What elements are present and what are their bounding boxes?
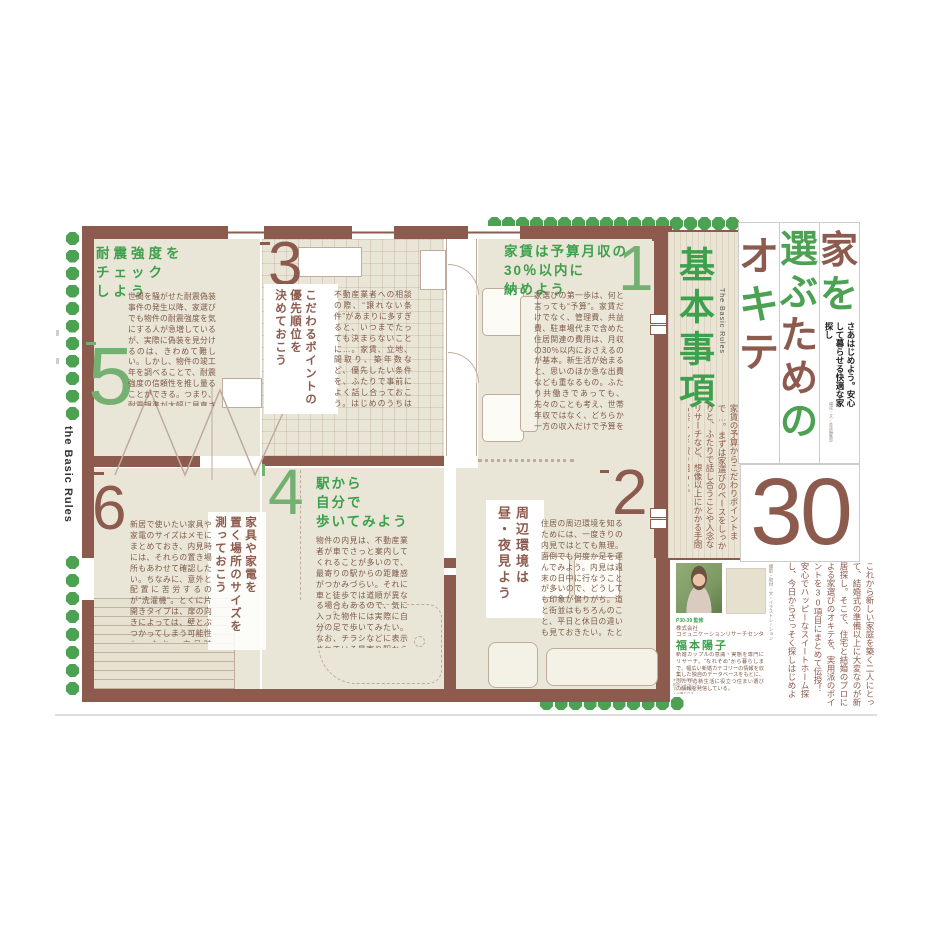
title-char: 選 bbox=[779, 229, 819, 272]
title-note: 構成・文／本誌編集部 bbox=[829, 402, 834, 458]
rule-2-headline: 周辺環境は 昼・夜見よう bbox=[494, 506, 530, 614]
dot-icon bbox=[66, 664, 79, 677]
door-jamb-block bbox=[444, 558, 456, 568]
left-rail-label: the Basic Rules bbox=[62, 426, 74, 541]
corridor-line bbox=[476, 239, 477, 456]
title-count: 30 bbox=[750, 459, 850, 565]
dot-icon bbox=[66, 407, 79, 420]
dot-icon bbox=[66, 610, 79, 623]
wall-divider-42 bbox=[444, 575, 456, 689]
rule-2-number: 2 bbox=[612, 460, 648, 524]
wall-left-lower bbox=[82, 600, 94, 702]
profile-photo bbox=[676, 563, 722, 613]
dot-icon bbox=[66, 646, 79, 659]
dot-icon bbox=[66, 232, 79, 245]
rule-3-body: 不動産業者への相談の際、“譲れない条件”があまりに多すぎると、いつまでたっても決… bbox=[334, 290, 412, 408]
dot-icon bbox=[66, 592, 79, 605]
title-char: キ bbox=[739, 281, 779, 329]
lead-text: これから新しい家庭を築く二人にとって、結婚式の準備以上に大変なのが新居探し。そこ… bbox=[784, 562, 876, 708]
title-col-2: 選 ぶ た め の bbox=[778, 222, 820, 464]
dot-icon bbox=[66, 390, 79, 403]
fridge bbox=[420, 250, 446, 290]
basics-intro: 家賃の予算からこだわりポイントまで…。まずは家選びのベースをしっかりと、ふたりで… bbox=[688, 404, 740, 552]
fold-mark bbox=[56, 330, 59, 336]
fold-mark bbox=[56, 358, 59, 364]
title-char: た bbox=[779, 315, 819, 358]
dot-icon bbox=[684, 217, 697, 230]
profile-name: 福本陽子 bbox=[676, 637, 728, 653]
window-icon bbox=[228, 226, 264, 239]
plan-note: ※掲載の間取り図はイメージです。実際の物件とは異なります。 bbox=[673, 678, 699, 694]
dot-icon bbox=[66, 337, 79, 350]
dot-icon bbox=[66, 267, 79, 280]
basics-title: 基本事項 bbox=[676, 240, 720, 420]
dot-icon bbox=[66, 682, 79, 695]
door-arc-icon bbox=[448, 264, 479, 295]
title-char: オ bbox=[739, 233, 779, 281]
rule-4-headline: 駅から 自分で 歩いてみよう bbox=[316, 474, 456, 531]
window-icon bbox=[468, 226, 520, 239]
dotted-track bbox=[478, 459, 574, 462]
dot-icon bbox=[66, 355, 79, 368]
chair bbox=[482, 394, 524, 442]
kitchen-counter bbox=[298, 247, 362, 277]
wall-right-lower bbox=[656, 558, 670, 702]
title-count-box: 30 bbox=[740, 464, 860, 562]
lead-credits: 撮影・取材・文・イラストレーション bbox=[768, 564, 774, 694]
title-char: め bbox=[779, 358, 819, 401]
rule-6-body: 新居で使いたい家具や家電のサイズはメモにまとめておき、内見時には、それらの置き場… bbox=[130, 520, 212, 642]
dot-icon bbox=[66, 556, 79, 569]
dot-icon bbox=[66, 574, 79, 587]
bathtub-drain bbox=[414, 636, 425, 647]
title-col-3: オ キ テ bbox=[738, 222, 780, 464]
dot-icon bbox=[66, 628, 79, 641]
dot-icon bbox=[712, 217, 725, 230]
door-arc-icon bbox=[448, 352, 479, 383]
rule-4-number: 4 bbox=[268, 460, 304, 524]
magazine-spread: the Basic Rules bbox=[0, 0, 930, 930]
rule-6-number: 6 bbox=[92, 478, 126, 540]
dot-icon bbox=[66, 285, 79, 298]
title-char: テ bbox=[739, 329, 779, 377]
dot-icon bbox=[698, 217, 711, 230]
rule-2-tick bbox=[600, 470, 609, 473]
dot-icon bbox=[66, 250, 79, 263]
rule-5-body: 世間を騒がせた耐震偽装事件の発生以降、家選びでも物件の耐震強度を気にする人が急増… bbox=[128, 292, 216, 406]
dot-icon bbox=[66, 320, 79, 333]
basics-subtitle-en: The Basic Rules bbox=[718, 288, 725, 383]
rule-5-number: 5 bbox=[88, 336, 134, 418]
toilet bbox=[546, 648, 658, 686]
title-char: 家 bbox=[819, 229, 859, 273]
corridor-line bbox=[446, 239, 447, 456]
wall-bottom bbox=[82, 689, 670, 702]
deco-dots-left-bottom bbox=[66, 556, 79, 695]
profile-role: P30-39 監修 bbox=[676, 617, 704, 624]
rule-3-headline: こだわるポイントの 優先順位を 決めておこう bbox=[272, 289, 317, 411]
dot-icon bbox=[66, 302, 79, 315]
rule-6-headline: 家具や家電を 置く場所のサイズを 測っておこう bbox=[212, 516, 257, 648]
washstand bbox=[488, 642, 538, 688]
dot-icon bbox=[66, 372, 79, 385]
page-bottom-edge bbox=[55, 714, 877, 716]
rule-1-body: 家選びの第一歩は、何と言っても“予算”。家賃だけでなく、管理費、共益費、駐車場代… bbox=[534, 291, 624, 431]
deco-dots-left-top bbox=[66, 232, 79, 420]
rule-4-body: 物件の内見は、不動産業者が車でさっと案内してくれることが多いので、最寄りの駅から… bbox=[316, 536, 408, 648]
window-icon bbox=[352, 226, 394, 239]
title-char: ぶ bbox=[779, 272, 819, 315]
profile-swatch bbox=[726, 568, 766, 614]
rule-4-tick bbox=[262, 464, 265, 476]
title-char: の bbox=[779, 401, 819, 444]
title-subtitle: さあはじめよう。安心して暮らせる快適な家探し bbox=[820, 322, 856, 410]
title-char: を bbox=[819, 273, 859, 317]
rule-2-body: 住居の周辺環境を知るためには、一度きりの内見ではとても無理。面倒でも何度か足を運… bbox=[541, 519, 623, 639]
